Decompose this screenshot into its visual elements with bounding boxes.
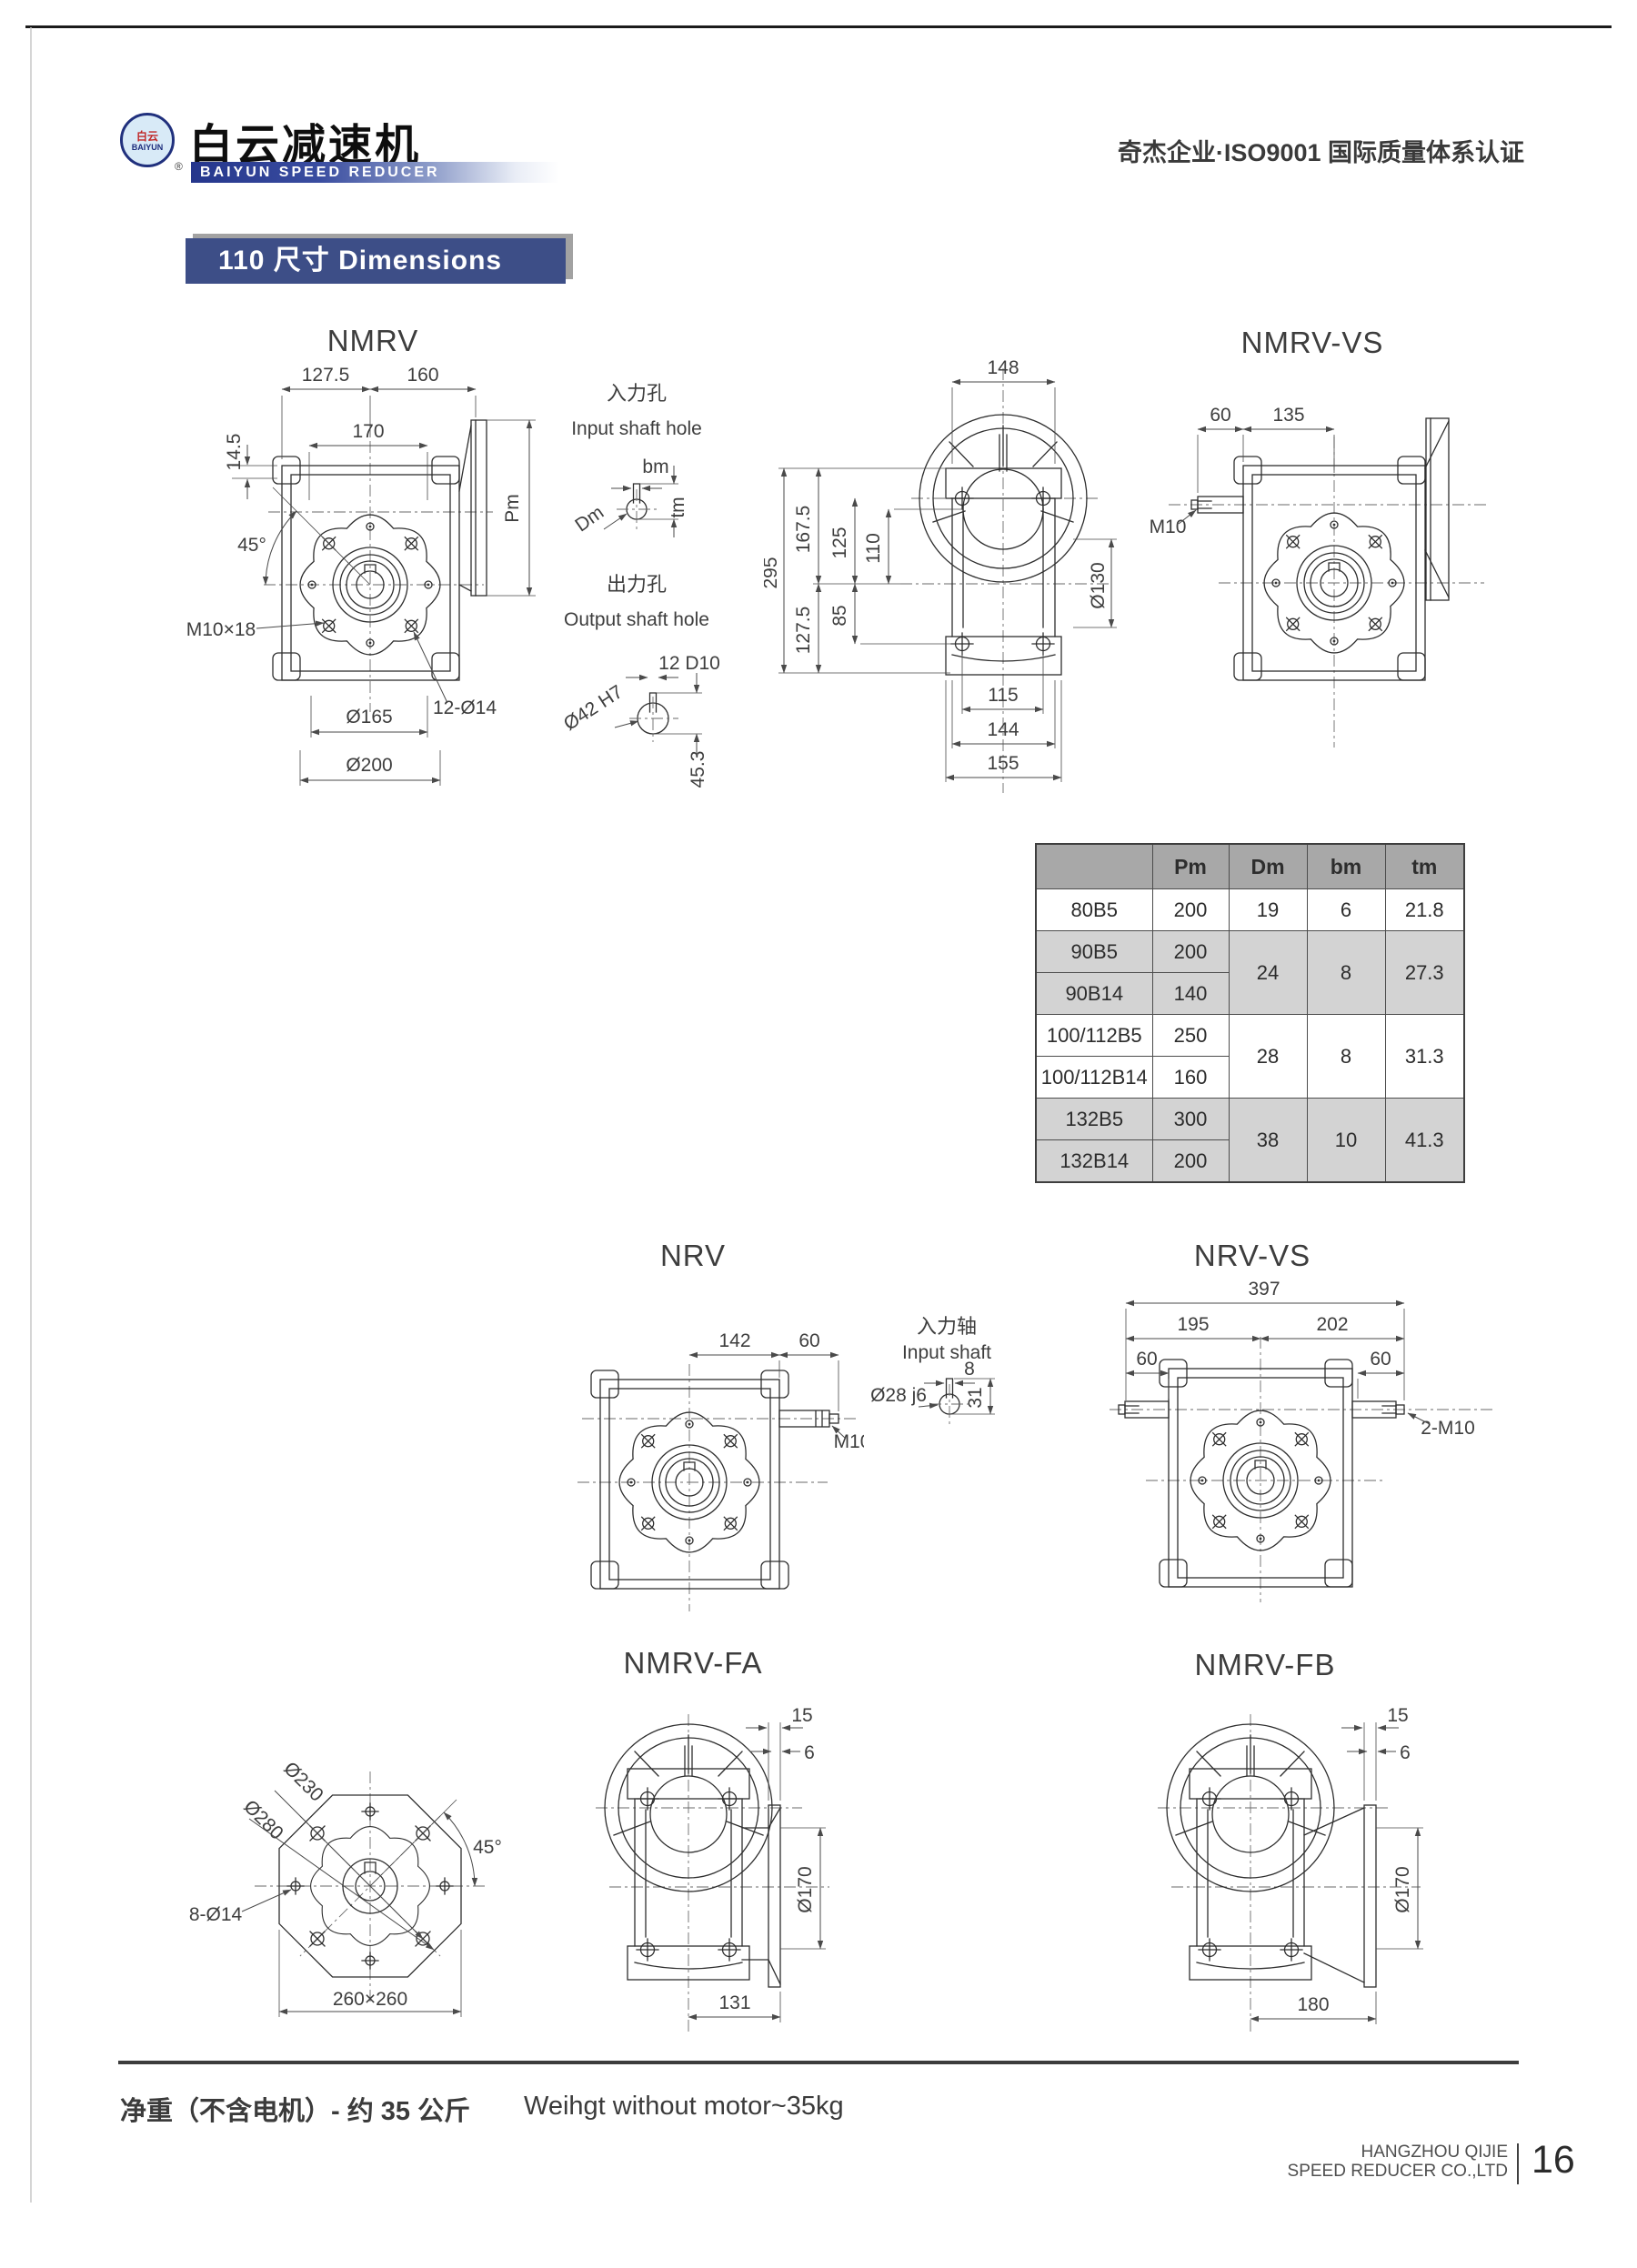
- cell-model: 100/112B14: [1036, 1057, 1152, 1099]
- dim-label: 60: [1370, 1349, 1391, 1370]
- weight-note-cn: 净重（不含电机）- 约 35 公斤: [120, 2090, 470, 2128]
- left-margin-rule: [30, 27, 32, 2203]
- nmrv-front-drawing: 127.5 160 170 14.5 45° M10×18 Ø165 Ø200 …: [127, 314, 555, 787]
- top-rule: [25, 25, 1612, 28]
- dia-label: Ø170: [795, 1866, 816, 1912]
- cell-pm: 160: [1152, 1057, 1229, 1099]
- table-row: 132B5 300 38 10 41.3: [1036, 1099, 1464, 1140]
- nmrv-fa-drawing: 15 6 Ø170 131: [582, 1691, 855, 2046]
- bm-label: bm: [642, 457, 668, 477]
- dim-label: 85: [829, 605, 850, 626]
- dia-label: Ø165: [346, 707, 392, 728]
- cell-bm: 8: [1307, 931, 1385, 1015]
- section-title-banner: 110 尺寸 Dimensions: [186, 238, 566, 284]
- dim-label: 142: [718, 1330, 750, 1351]
- cell-model: 132B14: [1036, 1140, 1152, 1183]
- dim-label: 15: [1387, 1705, 1408, 1726]
- input-shaft-title-cn: 入力轴: [917, 1315, 977, 1338]
- dim-label: 131: [718, 1992, 750, 2013]
- cell-model: 100/112B5: [1036, 1015, 1152, 1057]
- table-row: 100/112B5 250 28 8 31.3: [1036, 1015, 1464, 1057]
- shaft-hole-details-drawing: 入力孔 Input shaft hole bm Dm tm 出力孔 Output…: [546, 364, 746, 800]
- weight-note-en: Weihgt without motor~35kg: [524, 2092, 844, 2122]
- cell-pm: 200: [1152, 1140, 1229, 1183]
- column-header-tm: tm: [1385, 844, 1464, 889]
- cell-tm: 27.3: [1385, 931, 1464, 1015]
- key-label: 12 D10: [658, 653, 720, 674]
- cell-dm: 19: [1229, 889, 1307, 931]
- pm-label: Pm: [502, 494, 523, 523]
- table-row: 80B5 200 19 6 21.8: [1036, 889, 1464, 931]
- nrv-drawing: 142 60 M10: [555, 1310, 864, 1619]
- tm-label: tm: [668, 497, 688, 517]
- cell-model: 90B5: [1036, 931, 1152, 973]
- input-hole-title-cn: 入力孔: [607, 382, 667, 405]
- dim-label: 155: [987, 753, 1019, 774]
- nmrv-vs-drawing: 60 135 M10: [1128, 382, 1510, 764]
- nmrv-side-drawing: 148 295 167.5 127.5 125 110 85 Ø130 115 …: [764, 355, 1146, 800]
- footer-divider: [1517, 2143, 1519, 2184]
- dim-label: 295: [764, 557, 781, 588]
- certification-text: 奇杰企业·ISO9001 国际质量体系认证: [818, 133, 1524, 168]
- emblem-cn-label: 白云: [123, 131, 172, 143]
- cell-model: 90B14: [1036, 973, 1152, 1015]
- cell-pm: 300: [1152, 1099, 1229, 1140]
- nmrv-vs-geometry: [1191, 418, 1449, 680]
- dia-label: Ø170: [1392, 1866, 1413, 1912]
- dim-label: 125: [829, 527, 850, 558]
- bolt-note-label: 12-Ø14: [433, 697, 497, 718]
- registered-trademark-icon: ®: [175, 160, 183, 173]
- dia-label: Ø200: [346, 755, 392, 776]
- flange-face-dimensions: Ø230 Ø280 45° 8-Ø14 260×260: [189, 1758, 502, 2017]
- dim-label: 60: [798, 1330, 819, 1351]
- cell-tm: 31.3: [1385, 1015, 1464, 1099]
- flange-face-drawing: Ø230 Ø280 45° 8-Ø14 260×260: [155, 1728, 537, 2046]
- dim-label: 135: [1272, 405, 1304, 426]
- column-header-pm: Pm: [1152, 844, 1229, 889]
- dim-label: 127.5: [793, 607, 814, 655]
- dia-label: Ø280: [239, 1796, 287, 1844]
- catalog-page: 白云 BAIYUN ® 白云减速机 BAIYUN SPEED REDUCER 奇…: [0, 0, 1637, 2268]
- cell-tm: 41.3: [1385, 1099, 1464, 1183]
- column-header-model: [1036, 844, 1152, 889]
- bottom-rule: [118, 2061, 1519, 2064]
- dim-label: 127.5: [302, 365, 350, 386]
- input-shaft-detail-drawing: 入力轴 Input shaft 8 Ø28 j6 31: [864, 1310, 1037, 1464]
- dia-label: Ø28 j6: [870, 1385, 927, 1406]
- dim-label: 144: [987, 719, 1019, 740]
- nmrv-dimensions: 127.5 160 170 14.5 45° M10×18 Ø165 Ø200 …: [186, 365, 536, 786]
- cell-model: 132B5: [1036, 1099, 1152, 1140]
- angle-label: 45°: [473, 1837, 502, 1858]
- dim-label: 8: [964, 1359, 975, 1380]
- nmrv-vs-dimensions: 60 135 M10: [1150, 405, 1334, 537]
- dim-label: 167.5: [793, 506, 814, 554]
- figure-title-nmrv-fb: NMRV-FB: [1174, 1648, 1356, 1682]
- nmrv-fb-drawing: 15 6 Ø170 180: [1146, 1691, 1446, 2046]
- cell-dm: 28: [1229, 1015, 1307, 1099]
- cell-dm: 24: [1229, 931, 1307, 1015]
- figure-title-nmrv-fa: NMRV-FA: [602, 1646, 784, 1681]
- dim-label: 60: [1210, 405, 1230, 426]
- input-shaft-title-en: Input shaft: [902, 1342, 991, 1363]
- footer-company-line2: SPEED REDUCER CO.,LTD: [1246, 2162, 1508, 2181]
- dia-label: Ø230: [279, 1758, 327, 1806]
- dim-label: 31: [965, 1387, 986, 1408]
- brand-name-en-bar: BAIYUN SPEED REDUCER: [191, 162, 559, 183]
- footer-company-line1: HANGZHOU QIJIE: [1246, 2143, 1508, 2162]
- thread-label: M10×18: [186, 619, 256, 640]
- nmrv-fa-dimensions: 15 6 Ø170 131: [688, 1705, 826, 2022]
- dim-label: 397: [1248, 1279, 1280, 1300]
- figure-title-nrv: NRV: [602, 1239, 784, 1273]
- cell-bm: 6: [1307, 889, 1385, 931]
- holes-label: 8-Ø14: [189, 1904, 243, 1925]
- cell-model: 80B5: [1036, 889, 1152, 931]
- dim-label: 160: [407, 365, 438, 386]
- column-header-dm: Dm: [1229, 844, 1307, 889]
- nmrv-geometry: [273, 420, 487, 680]
- output-hole-title-cn: 出力孔: [607, 573, 667, 596]
- brand-emblem-icon: 白云 BAIYUN: [120, 113, 175, 167]
- dim-label: 60: [1136, 1349, 1157, 1370]
- nrv-dimensions: 142 60 M10: [689, 1330, 864, 1452]
- dim-label: 202: [1316, 1314, 1348, 1335]
- dim-label: 110: [863, 533, 884, 563]
- nmrv-fa-geometry: [605, 1724, 780, 1987]
- dim-label: 115: [988, 685, 1018, 706]
- dim-label: 195: [1177, 1314, 1209, 1335]
- footer-company: HANGZHOU QIJIE SPEED REDUCER CO.,LTD: [1246, 2143, 1508, 2181]
- dm-label: Dm: [571, 502, 608, 537]
- thread-label: 2-M10: [1421, 1418, 1475, 1439]
- thread-label: M10: [834, 1431, 864, 1452]
- cell-pm: 140: [1152, 973, 1229, 1015]
- column-header-bm: bm: [1307, 844, 1385, 889]
- cell-tm: 21.8: [1385, 889, 1464, 931]
- thread-label: M10: [1150, 517, 1187, 537]
- output-hole-title-en: Output shaft hole: [564, 609, 709, 630]
- cell-dm: 38: [1229, 1099, 1307, 1183]
- input-hole-title-en: Input shaft hole: [571, 418, 702, 439]
- nmrv-side-dimensions: 148 295 167.5 127.5 125 110 85 Ø130 115 …: [764, 357, 1117, 782]
- nmrv-fb-dimensions: 15 6 Ø170 180: [1250, 1705, 1423, 2024]
- nrv-geometry: [591, 1370, 839, 1589]
- dim-label: 170: [352, 421, 384, 442]
- dim-label: 15: [791, 1705, 812, 1726]
- table-row: 90B5 200 24 8 27.3: [1036, 931, 1464, 973]
- figure-title-nrv-vs: NRV-VS: [1161, 1239, 1343, 1273]
- dim-label: 6: [804, 1742, 815, 1763]
- nrv-vs-drawing: 397 195 202 60 60 2-M10: [1091, 1273, 1510, 1619]
- emblem-en-label: BAIYUN: [123, 143, 172, 152]
- cell-pm: 200: [1152, 931, 1229, 973]
- figure-title-nmrv-vs: NMRV-VS: [1221, 326, 1403, 360]
- dim-label: 14.5: [224, 434, 245, 471]
- nmrv-fb-geometry: [1167, 1724, 1376, 1987]
- page-number: 16: [1532, 2138, 1575, 2183]
- dim-label: 148: [987, 357, 1019, 378]
- dim-label: 180: [1297, 1994, 1329, 2015]
- motor-flange-dimension-table: Pm Dm bm tm 80B5 200 19 6 21.8 90B5 200 …: [1035, 843, 1465, 1183]
- dim-label: 6: [1400, 1742, 1411, 1763]
- cell-pm: 200: [1152, 889, 1229, 931]
- dia-label: Ø130: [1088, 562, 1109, 608]
- depth-label: 45.3: [688, 751, 708, 788]
- dim-label: 260×260: [333, 1989, 407, 2010]
- cell-pm: 250: [1152, 1015, 1229, 1057]
- cell-bm: 8: [1307, 1015, 1385, 1099]
- cell-bm: 10: [1307, 1099, 1385, 1183]
- angle-label: 45°: [237, 535, 266, 556]
- nrv-vs-geometry: [1119, 1360, 1404, 1587]
